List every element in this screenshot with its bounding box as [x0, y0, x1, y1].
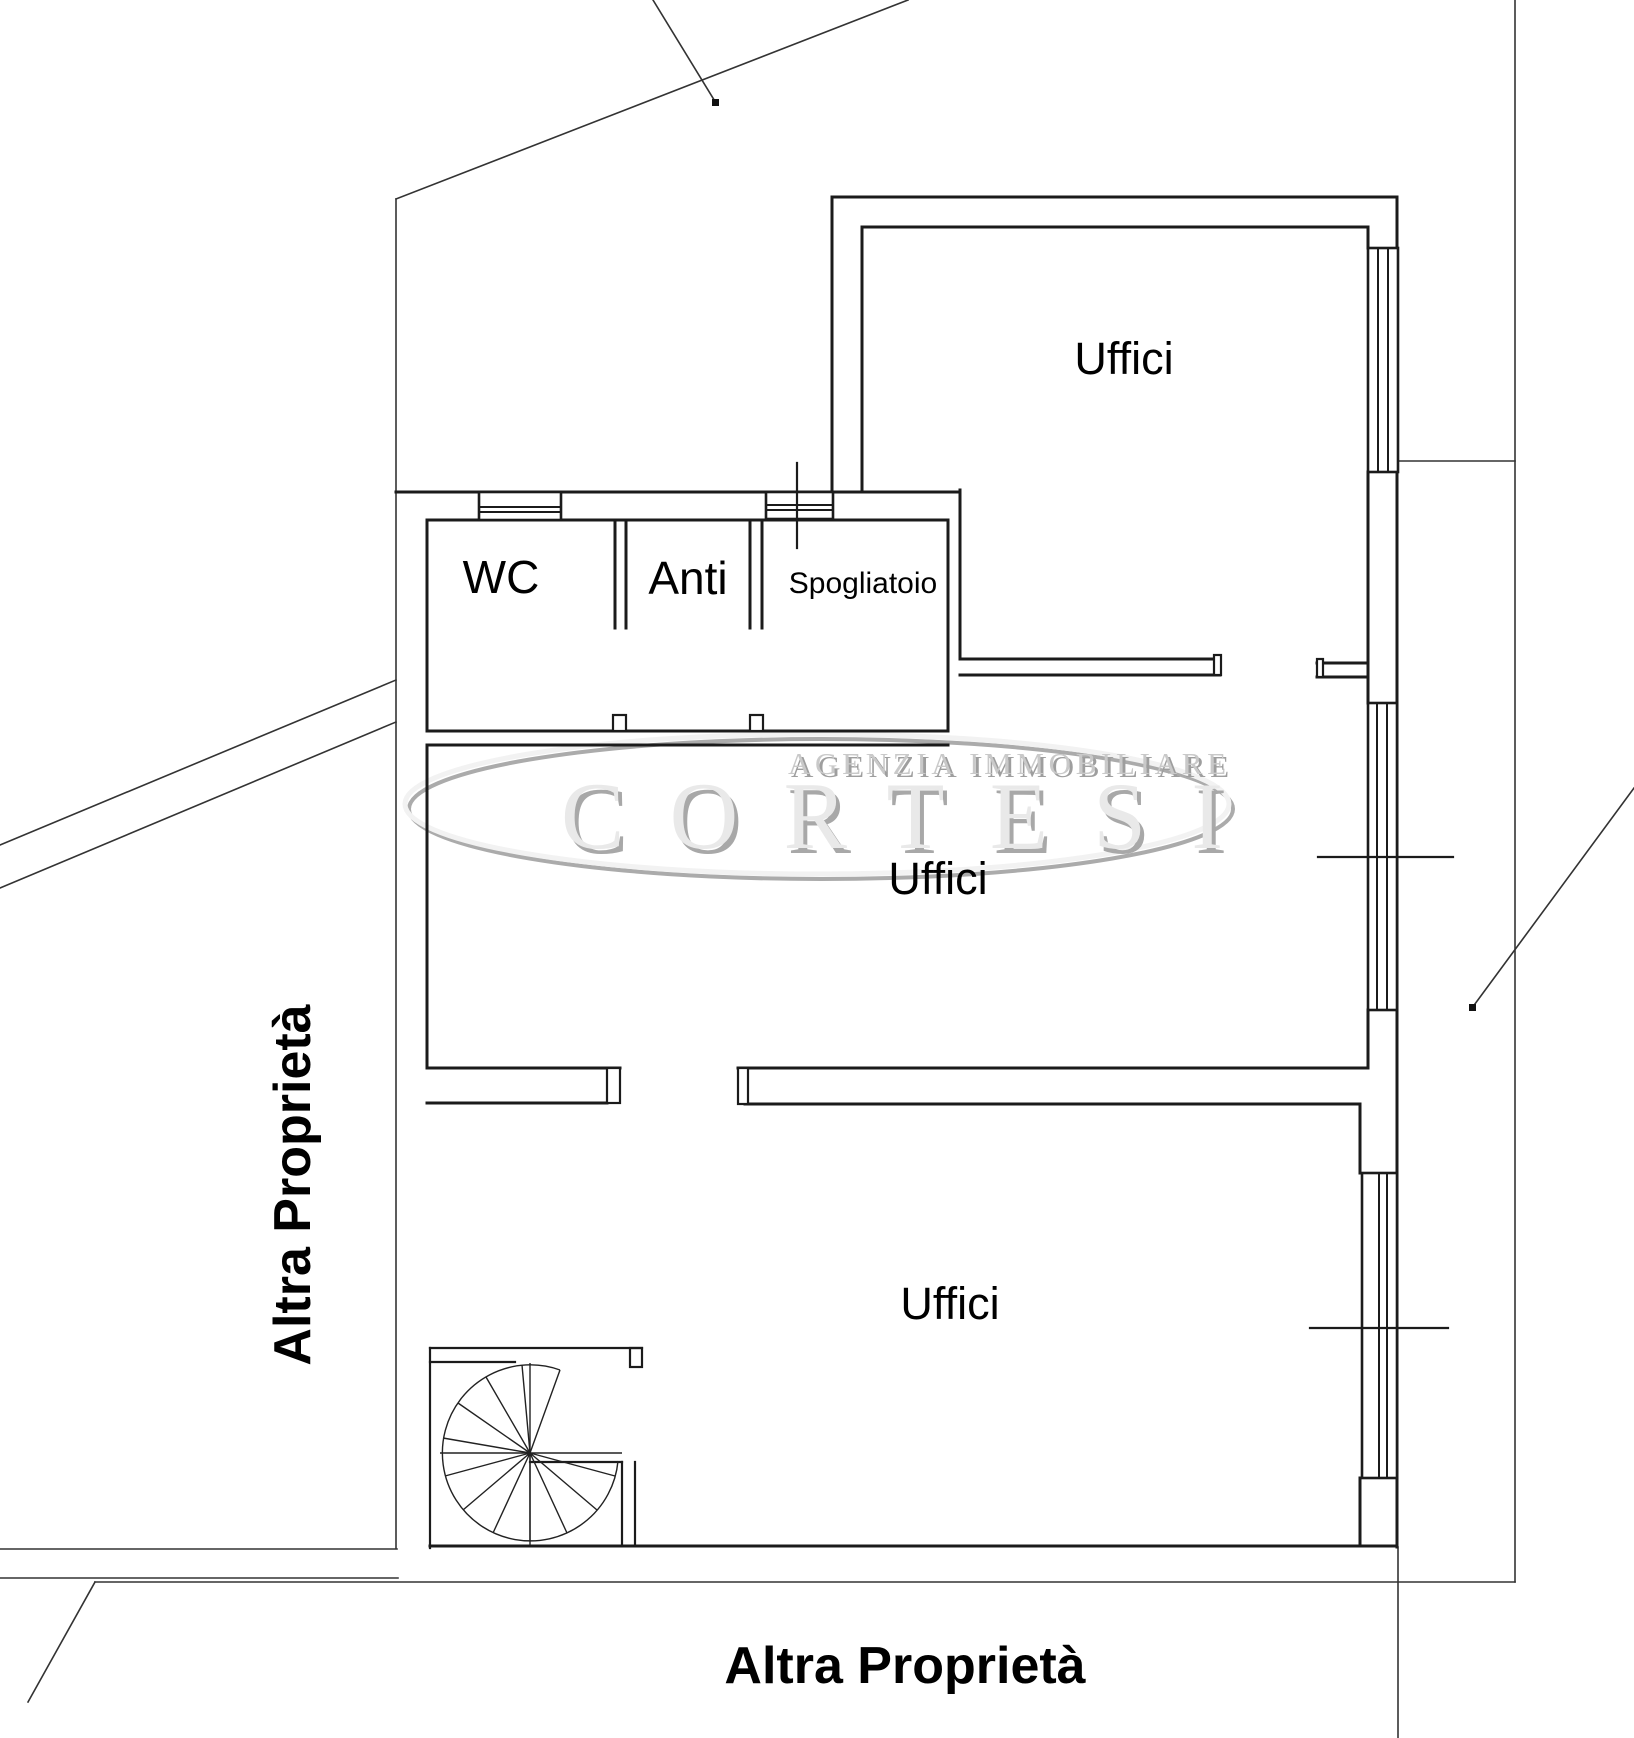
survey-point-right: [1469, 1004, 1476, 1011]
boundary-road-line-upper: [0, 680, 396, 845]
room-label-anti: Anti: [648, 552, 727, 604]
wall-divider-right-segment: [738, 1068, 1368, 1104]
boundary-diagonal-topleft: [396, 0, 908, 199]
jamb-wc-door: [613, 715, 626, 731]
stair-wall-east-pair: [622, 1462, 635, 1546]
window-right-upper: [1368, 248, 1398, 472]
wall-divider-left-segment: [427, 1068, 620, 1103]
jamb-anti-door: [750, 715, 763, 731]
label-altra-proprieta-left: Altra Proprietà: [264, 1003, 322, 1365]
room-label-uffici-top: Uffici: [1074, 333, 1173, 384]
jamb-stair-door: [630, 1348, 642, 1367]
room-label-spogliatoio: Spogliatoio: [789, 567, 937, 600]
watermark-logo: AGENZIA IMMOBILIARE AGENZIA IMMOBILIARE …: [405, 734, 1237, 879]
room-label-uffici-bottom: Uffici: [900, 1278, 999, 1329]
wall-middle-top-left-segment: [960, 659, 1220, 675]
spiral-staircase: [430, 1348, 642, 1548]
label-altra-proprieta-bottom: Altra Proprietà: [724, 1637, 1086, 1695]
floor-plan-drawing: AGENZIA IMMOBILIARE AGENZIA IMMOBILIARE …: [0, 0, 1634, 1738]
jamb-divider-left: [607, 1068, 620, 1103]
window-spogliatoio-top: [766, 492, 833, 519]
window-right-lower: [1362, 1173, 1397, 1478]
jamb-divider-right: [738, 1068, 748, 1104]
boundary-diagonal-right: [1472, 788, 1634, 1008]
room-label-wc: WC: [463, 551, 540, 603]
partition-wc-anti: [615, 520, 626, 628]
room-label-uffici-middle: Uffici: [888, 853, 987, 904]
wall-middle-top-right-segment: [1317, 663, 1368, 677]
survey-point-top: [712, 99, 719, 106]
jamb-topwall-left: [1214, 655, 1221, 675]
partition-anti-spogliatoio: [750, 520, 762, 628]
boundary-road-line-lower: [0, 722, 396, 888]
window-wc-top: [479, 492, 561, 520]
boundary-diagonal-bottomleft: [28, 1582, 95, 1702]
floor-plan-page: AGENZIA IMMOBILIARE AGENZIA IMMOBILIARE …: [0, 0, 1634, 1738]
jamb-topwall-right: [1317, 659, 1323, 677]
